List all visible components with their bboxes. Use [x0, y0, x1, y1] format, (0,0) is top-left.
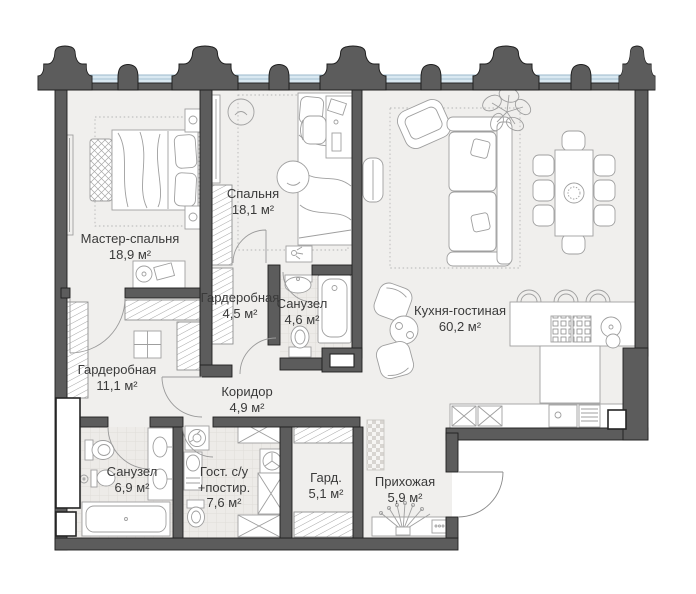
dishwasher	[579, 405, 600, 427]
doormat	[367, 420, 384, 470]
wall-b	[268, 265, 280, 345]
wc-sink	[184, 452, 202, 490]
vanity-desk	[133, 261, 185, 288]
bathtub	[318, 275, 351, 343]
pilaster-large	[172, 46, 238, 90]
bathtub	[82, 502, 170, 536]
pilaster-corner	[619, 46, 655, 90]
kitchen-island-leg	[540, 346, 600, 403]
shaft-left-large	[56, 398, 80, 508]
shaft-right	[608, 410, 626, 429]
wardrobe-45-strip	[212, 268, 233, 344]
wall-bath46-bottom	[280, 358, 322, 370]
wall-corridor-c	[213, 417, 360, 427]
wall-corridor-b	[150, 417, 183, 427]
toilet	[187, 500, 205, 527]
appliance	[452, 406, 476, 426]
wardrobe-island	[134, 331, 161, 358]
nightstand	[185, 109, 202, 132]
desk-chair	[301, 116, 327, 144]
wall-a-stub	[200, 365, 232, 377]
pilaster-small	[421, 65, 441, 91]
wall-ward-hall	[353, 427, 363, 538]
wall-bedroom-right	[352, 83, 362, 358]
wall-a	[200, 88, 212, 367]
wall-console	[363, 158, 383, 202]
pilaster-small	[118, 65, 138, 91]
nightstand	[286, 246, 312, 262]
pilaster-small	[269, 65, 289, 91]
storage-cabinet	[238, 515, 280, 537]
coffee-table	[390, 316, 418, 344]
wall-right-upper	[635, 83, 648, 356]
wall-entry-right-a	[446, 433, 458, 472]
pilaster-small	[571, 65, 591, 91]
shaft-left-small	[56, 512, 76, 536]
double-vanity	[148, 428, 173, 500]
mirror-panel	[212, 95, 220, 183]
toilet	[85, 440, 114, 460]
pouf	[277, 161, 309, 193]
desk	[326, 96, 352, 158]
pilaster-corner	[38, 46, 92, 90]
wall-master-bottom-b	[125, 288, 200, 298]
counter-sink	[549, 405, 577, 427]
hob	[573, 316, 591, 342]
toilet	[289, 326, 311, 357]
pillow	[174, 134, 197, 168]
wall-master-bottom-a	[61, 288, 70, 298]
pilaster-large	[320, 46, 386, 90]
bed-bench	[90, 139, 112, 201]
washing-machine	[185, 426, 209, 450]
floor-plan-drawing	[0, 0, 696, 594]
wall-bottom	[55, 538, 458, 550]
hob	[551, 316, 571, 342]
wall-bath69-guest	[173, 427, 183, 538]
dining-table	[555, 150, 593, 236]
wardrobe-strip	[212, 185, 232, 265]
wall-guest-ward	[280, 427, 292, 538]
pilaster-large	[473, 46, 539, 90]
key-box	[432, 520, 446, 533]
appliance	[478, 406, 502, 426]
door-entrance	[458, 472, 503, 517]
wall-entry-right-b	[446, 517, 458, 538]
floor-plan: Мастер-спальня18,9 м² Спальня18,1 м² Гар…	[0, 0, 696, 594]
pillow	[174, 172, 197, 206]
shaft-corner-inset	[330, 354, 354, 367]
nightstand	[185, 206, 202, 229]
